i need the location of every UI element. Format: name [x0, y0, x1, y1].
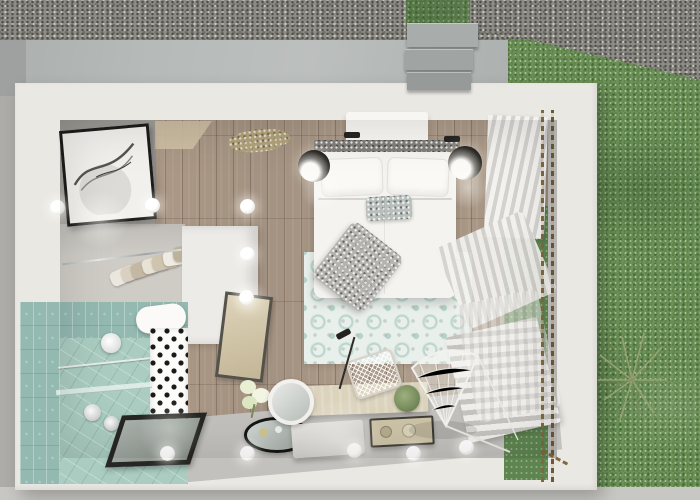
wall-art-image — [62, 127, 147, 217]
wall-lamp-left — [298, 150, 330, 182]
desk-plant — [394, 385, 420, 412]
wall-art-frame — [59, 123, 157, 226]
dried-grass-plant — [592, 325, 674, 430]
pillow-right — [386, 157, 449, 197]
polka-dot-wall — [150, 328, 188, 422]
tray-dish-1 — [380, 426, 393, 439]
curtain-mount-right — [444, 136, 460, 142]
garden-step-1 — [407, 23, 478, 47]
hanging-clothes — [60, 224, 185, 304]
bathroom — [20, 302, 188, 484]
outer-left-strip — [0, 96, 15, 500]
decor-cushion — [365, 195, 412, 221]
scene — [0, 0, 700, 500]
hanging-chair — [398, 340, 548, 465]
tray-item-1 — [259, 428, 268, 437]
garden-step-3 — [407, 72, 471, 90]
towel-bar — [58, 357, 150, 369]
curtain-mount-left — [344, 132, 360, 138]
garden-step-2 — [405, 49, 473, 70]
wardrobe-closet — [60, 224, 185, 304]
bead-string-2 — [551, 110, 554, 482]
glass-shelf — [56, 382, 152, 396]
floor-platform — [291, 420, 365, 459]
wall-lamp-right — [448, 146, 482, 180]
round-mirror — [268, 379, 314, 425]
shower-head — [101, 333, 121, 353]
tray-item-2 — [275, 426, 282, 433]
shower-control-1 — [84, 404, 101, 421]
